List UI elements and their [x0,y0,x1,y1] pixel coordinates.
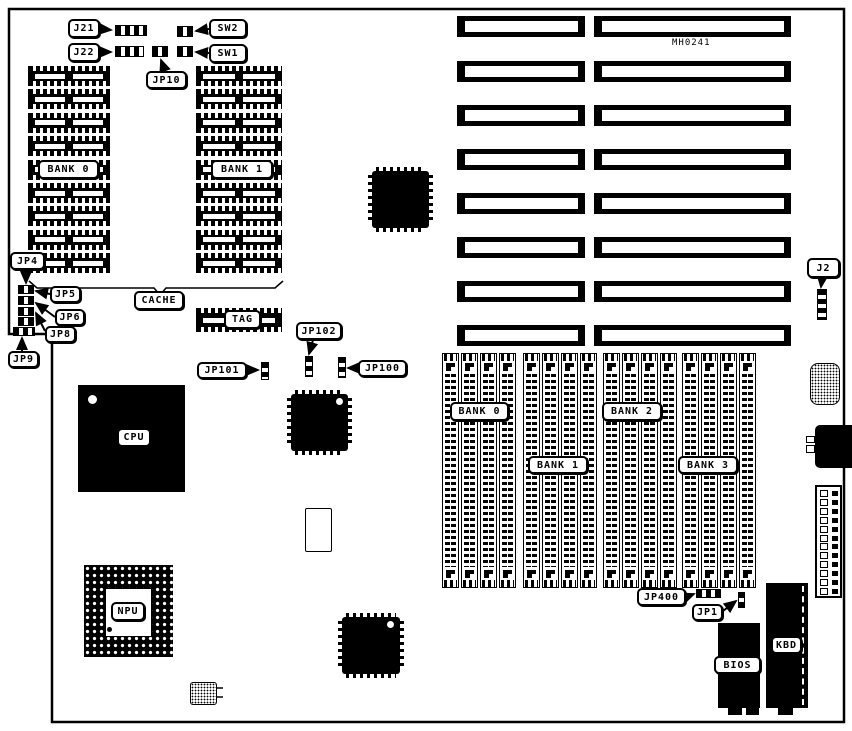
power-pin-mark [832,562,838,567]
dip-window [203,237,235,242]
simm-socket [461,353,478,588]
simm-detail [446,363,455,371]
simm-detail [503,570,512,578]
dip-window [243,261,275,266]
simm-detail [501,354,514,361]
simm-detail [446,570,455,578]
expansion-slot [594,16,791,37]
cache-dip-chip [196,183,282,203]
dip-window [73,74,103,79]
simm-detail [669,374,674,567]
label-sw1: SW1 [209,44,247,63]
simm-detail [686,570,695,578]
simm-detail [484,363,493,371]
label-sw2: SW2 [209,19,247,38]
simm-detail [703,580,716,587]
simm-detail [662,580,675,587]
expansion-slot-opening [465,66,578,77]
label-simm-bank2: BANK 2 [602,402,662,421]
expansion-slot-opening [602,110,784,121]
simm-detail [563,354,576,361]
simm-detail [645,363,654,371]
jp10-jumper [152,46,168,57]
simm-detail [525,580,538,587]
cache-dip-chip [196,230,282,250]
label-simm-bank3: BANK 3 [678,456,738,474]
power-pin-mark [832,580,838,585]
jp101-jumper [261,362,269,380]
dip-window [203,97,235,102]
power-pin-mark [832,509,838,514]
simm-detail [482,580,495,587]
simm-detail [663,374,668,567]
expansion-slot [457,105,585,126]
cache-dip-chip [196,89,282,109]
simm-detail [525,354,538,361]
expansion-slot [457,149,585,170]
power-connector [815,485,842,598]
simm-detail [546,363,555,371]
simm-detail [465,363,474,371]
dip-window [73,237,103,242]
cache-dip-chip [28,136,110,156]
simm-detail [605,354,618,361]
jp4-jumper [18,285,34,294]
bios-chip-tab [728,708,742,715]
expansion-slot [457,237,585,258]
power-pin [820,535,828,542]
dip-window [73,191,103,196]
pin1-dot [336,398,343,405]
expansion-slot-opening [465,330,578,341]
simm-detail [563,580,576,587]
dip-window [243,214,275,219]
power-pin [820,579,828,586]
simm-detail [445,374,450,567]
label-simm-bank0: BANK 0 [450,402,509,421]
dip-window [73,214,103,219]
dip-window [35,74,65,79]
jp9-jumper [13,327,35,336]
dip-window [35,237,65,242]
label-jp8: JP8 [45,326,76,343]
dip-window [73,97,103,102]
connector-tab [806,436,815,443]
dip-window [243,191,275,196]
label-cache: CACHE [134,291,184,310]
simm-detail [544,580,557,587]
simm-detail [626,363,635,371]
label-jp400: JP400 [637,588,686,606]
kbd-chip-dashed-edge [802,586,804,705]
simm-detail [703,354,716,361]
jp8-jumper [18,317,34,326]
label-cpu: CPU [117,428,151,447]
simm-detail [484,570,493,578]
simm-detail [624,354,637,361]
label-jp4: JP4 [10,252,45,270]
leader-sw1 [196,52,209,53]
label-cache-bank1: BANK 1 [211,160,273,179]
jp100-jumper [338,357,346,378]
dip-window [35,97,65,102]
power-pin [820,499,828,506]
jp1-jumper [738,592,745,608]
cache-dip-chip [28,89,110,109]
simm-detail [465,570,474,578]
dip-window [73,144,103,149]
simm-detail [605,580,618,587]
power-pin-mark [832,527,838,532]
label-jp10: JP10 [146,71,187,89]
simm-socket [622,353,639,588]
label-jp6: JP6 [55,309,85,326]
leader-j21 [100,29,111,30]
simm-detail [589,374,594,567]
label-kbd: KBD [771,636,802,654]
expansion-slot-opening [602,330,784,341]
motherboard-diagram: MH0241 J21 [0,0,852,731]
simm-detail [624,580,637,587]
dip-window [203,214,235,219]
jp6-jumper [18,307,34,316]
pin1-dot [387,621,394,628]
cache-dip-chip [196,206,282,226]
leader-j2 [821,279,822,287]
cache-dip-chip [196,113,282,133]
simm-detail [444,354,457,361]
power-pin [820,552,828,559]
label-simm-bank1: BANK 1 [528,456,588,474]
cache-dip-chip [28,206,110,226]
cache-dip-chip [28,66,110,86]
power-pin [820,588,828,595]
label-npu: NPU [111,602,145,621]
simm-socket [739,353,756,588]
simm-detail [544,354,557,361]
dip-window [35,120,65,125]
dip-window [203,261,235,266]
dip-window [203,74,235,79]
simm-detail [684,580,697,587]
simm-detail [722,354,735,361]
simm-socket [499,353,516,588]
j21-jumper [115,25,147,36]
expansion-slot-opening [465,286,578,297]
power-pin-mark [832,544,838,549]
power-pin-mark [832,518,838,523]
label-jp1: JP1 [692,604,723,621]
dip-window [73,261,103,266]
simm-detail [645,570,654,578]
jp400-jumper [696,589,721,598]
expansion-slot-opening [602,198,784,209]
expansion-slot [457,325,585,346]
qfp-chip-bottom [338,613,404,678]
sw1-switch [177,46,193,57]
label-jp9: JP9 [8,351,39,368]
label-jp102: JP102 [296,322,342,340]
simm-detail [463,354,476,361]
expansion-slot-opening [602,21,784,32]
cache-dip-chip [28,183,110,203]
dip-window [35,144,65,149]
expansion-slot [594,105,791,126]
cache-dip-chip [196,136,282,156]
dip-window [243,97,275,102]
simm-detail [546,570,555,578]
simm-detail [743,570,752,578]
simm-detail [582,354,595,361]
simm-socket [603,353,620,588]
power-pin [820,508,828,515]
label-bios: BIOS [714,656,761,674]
label-jp101: JP101 [197,362,247,379]
connector-tab [806,445,815,453]
expansion-slot-opening [465,198,578,209]
simm-socket [480,353,497,588]
power-pin-mark [832,553,838,558]
dip-window [243,74,275,79]
cache-dip-chip [28,113,110,133]
simm-detail [743,363,752,371]
expansion-slot-opening [465,21,578,32]
label-j21: J21 [68,19,100,38]
jp102-jumper [305,356,313,377]
cache-dip-chip [28,230,110,250]
label-jp5: JP5 [50,286,81,303]
expansion-slot-opening [602,154,784,165]
simm-detail [724,570,733,578]
cache-dip-chip [196,253,282,273]
label-tag: TAG [224,310,261,329]
simm-detail [722,580,735,587]
dip-window [73,120,103,125]
dip-window [203,120,235,125]
simm-detail [565,570,574,578]
expansion-slot-opening [465,154,578,165]
crystal-component [305,508,332,552]
simm-detail [748,374,753,567]
qfp-chip-top [368,167,433,232]
din-edge-connector [815,425,852,468]
simm-detail [684,354,697,361]
expansion-slot-opening [465,110,578,121]
expansion-slot [457,16,585,37]
expansion-slot [594,325,791,346]
power-pin-mark [832,589,838,594]
simm-detail [463,580,476,587]
simm-detail [724,363,733,371]
dip-window [203,191,235,196]
simm-detail [705,570,714,578]
j2-jumper [817,289,827,320]
expansion-slot [594,149,791,170]
power-pin-mark [832,491,838,496]
bios-chip-tab [746,708,759,715]
simm-detail [664,570,673,578]
pin1-dot [88,395,97,404]
expansion-slot [594,193,791,214]
simm-detail [607,570,616,578]
dip-window [243,144,275,149]
simm-detail [565,363,574,371]
power-pin-mark [832,536,838,541]
simm-detail [626,570,635,578]
expansion-slot-opening [602,242,784,253]
keyboard-connector-footprint [810,363,840,405]
expansion-slot [457,61,585,82]
label-j22: J22 [68,43,100,62]
simm-detail [584,363,593,371]
simm-detail [582,580,595,587]
jp5-jumper [18,296,34,305]
expansion-slot [594,237,791,258]
part-number: MH0241 [672,38,711,48]
simm-detail [527,570,536,578]
expansion-slot [594,61,791,82]
simm-detail [501,580,514,587]
kbd-chip-tab [778,708,793,715]
label-j2: J2 [807,258,840,278]
dip-window [243,120,275,125]
simm-detail [741,354,754,361]
simm-detail [527,363,536,371]
simm-detail [607,363,616,371]
simm-detail [444,580,457,587]
power-pin [820,517,828,524]
power-pin [820,526,828,533]
expansion-slot-opening [602,66,784,77]
power-pin [820,543,828,550]
j22-jumper [115,46,144,57]
simm-detail [686,363,695,371]
power-pin [820,561,828,568]
simm-socket [660,353,677,588]
expansion-slot-opening [602,286,784,297]
label-jp100: JP100 [358,360,407,377]
power-pin-mark [832,500,838,505]
simm-detail [662,354,675,361]
dip-window [203,144,235,149]
simm-detail [584,570,593,578]
oscillator-component [190,682,217,705]
simm-detail [705,363,714,371]
simm-detail [508,374,513,567]
power-pin [820,490,828,497]
simm-detail [742,374,747,567]
expansion-slot [457,281,585,302]
simm-detail [482,354,495,361]
qfp-chip-middle [287,390,352,455]
simm-detail [503,363,512,371]
simm-detail [643,354,656,361]
dip-window [243,237,275,242]
simm-socket [442,353,459,588]
sw2-switch [177,26,193,37]
expansion-slot [457,193,585,214]
simm-detail [664,363,673,371]
pin1-dot [107,627,112,632]
label-cache-bank0: BANK 0 [38,160,99,179]
expansion-slot-opening [465,242,578,253]
simm-socket [641,353,658,588]
power-pin [820,570,828,577]
expansion-slot [594,281,791,302]
cache-dip-chip [196,66,282,86]
power-pin-mark [832,571,838,576]
dip-window [35,214,65,219]
dip-window [35,191,65,196]
simm-detail [741,580,754,587]
simm-detail [643,580,656,587]
